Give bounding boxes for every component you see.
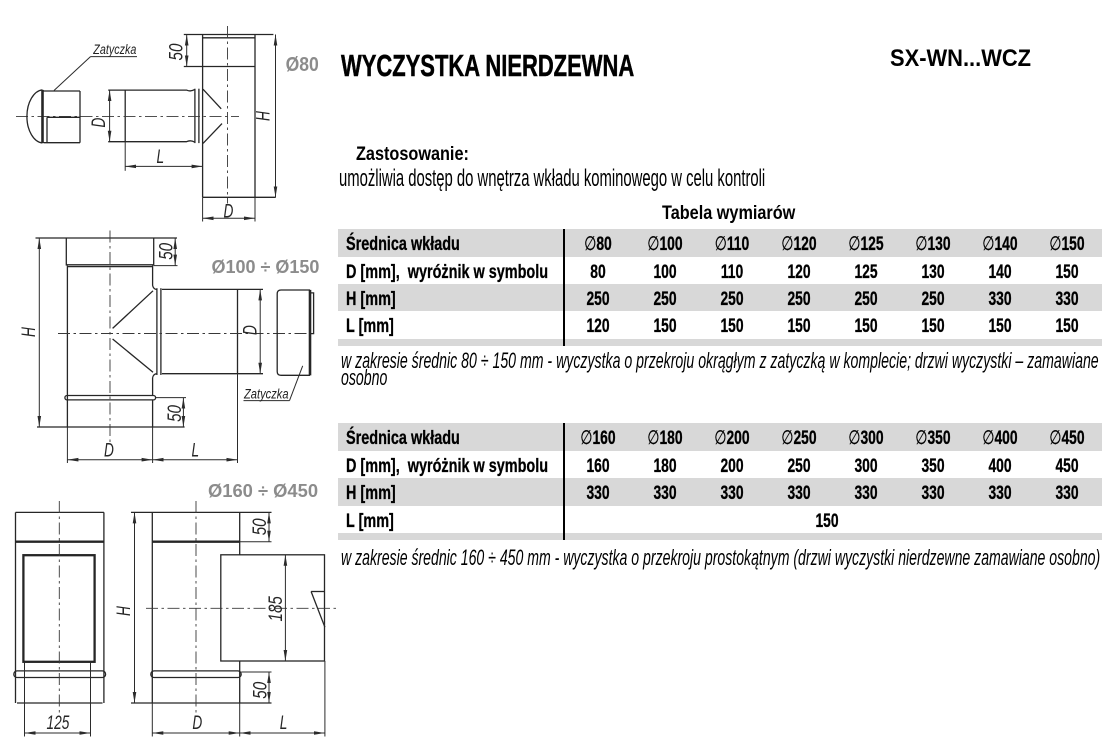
svg-text:Zatyczka: Zatyczka xyxy=(243,386,289,401)
svg-text:50: 50 xyxy=(248,518,270,535)
svg-text:D: D xyxy=(88,118,110,128)
svg-text:D: D xyxy=(104,439,114,461)
svg-text:L: L xyxy=(192,439,200,461)
svg-text:D: D xyxy=(239,325,261,335)
svg-text:Ø80: Ø80 xyxy=(286,53,319,75)
svg-text:D: D xyxy=(192,712,202,734)
svg-text:50: 50 xyxy=(155,243,177,260)
svg-text:Zatyczka: Zatyczka xyxy=(93,42,137,57)
svg-text:Ø160 ÷ Ø450: Ø160 ÷ Ø450 xyxy=(208,481,318,501)
svg-text:50: 50 xyxy=(163,405,185,422)
svg-text:H: H xyxy=(252,111,274,121)
svg-text:L: L xyxy=(280,712,288,734)
svg-text:H: H xyxy=(18,327,40,337)
svg-text:185: 185 xyxy=(264,596,286,622)
svg-text:50: 50 xyxy=(165,43,187,60)
svg-text:H: H xyxy=(113,606,135,616)
svg-text:Ø100 ÷ Ø150: Ø100 ÷ Ø150 xyxy=(212,257,320,277)
svg-text:L: L xyxy=(157,146,165,168)
svg-text:50: 50 xyxy=(249,681,271,698)
svg-text:125: 125 xyxy=(47,712,70,734)
svg-text:D: D xyxy=(224,200,234,222)
